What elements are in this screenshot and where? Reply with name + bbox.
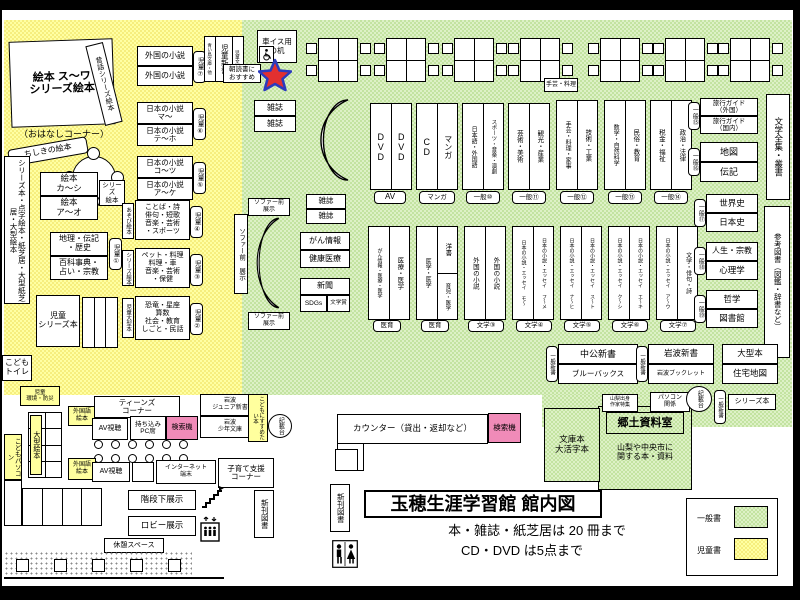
- sofa-front-display-bottom: ソファー前 展示: [248, 312, 290, 330]
- corner-shelf-h-cell: [43, 489, 62, 525]
- ippan-shinsho-label-3: 一般新書: [714, 390, 726, 424]
- kids-pc-label: こどもパソコン: [4, 434, 22, 480]
- sofa-front-display-vertical: ソファー前 展示: [234, 214, 248, 294]
- world-history-shelf: 世界史: [706, 194, 758, 213]
- jp-essay-ku-shelf-col: 日本の小説・エッセイ エ～キ: [629, 227, 650, 319]
- cd-manga-shelf: CDマンガ: [416, 103, 458, 190]
- chair: [496, 65, 507, 76]
- dvd-shelf-col: DVD: [391, 104, 412, 189]
- lobby-display: ロビー展示: [128, 516, 196, 536]
- ippan-17-label: 一般⑰: [694, 199, 706, 227]
- chair: [306, 43, 317, 54]
- chair: [360, 43, 371, 54]
- search-machine-2: 検索機: [166, 416, 198, 440]
- study-table: [600, 38, 640, 82]
- cancer-medical-shelf: がん情報・医療・医学医療・医学: [368, 226, 410, 320]
- legend-general-label: 一般書: [692, 512, 726, 526]
- medical-foreign-shelf-part: 洋書: [438, 227, 458, 273]
- foreign-novels-2: 外国の小説: [137, 66, 193, 86]
- art-tourism-shelf-col: 芸術・美術: [509, 104, 529, 189]
- art-tourism-shelf-col: 観光・産業: [529, 104, 550, 189]
- encyclopedia-shelf: 百科事典・ 占い・宗教: [50, 256, 108, 280]
- kids-toilet-label: こども トイレ: [2, 355, 32, 381]
- chair: [707, 65, 718, 76]
- table-top: [600, 38, 640, 82]
- chuko-shinsho-shelf: 中公新書: [558, 344, 638, 364]
- jp-novels-ma: 日本の小説 マ～: [137, 102, 193, 124]
- magazines-1a: 雑誌: [254, 100, 296, 116]
- series-ehon-side-label: シリーズ絵本: [122, 250, 134, 286]
- newspaper-shelf: 新聞: [300, 278, 350, 295]
- table-top: [730, 38, 770, 82]
- math-folklore-shelf-col: 数学・自然科学: [605, 101, 625, 189]
- chair: [562, 43, 573, 54]
- jido-2-label: 児童②: [190, 303, 203, 335]
- philosophy-shelf: 哲学: [706, 290, 758, 309]
- iwanami-shinsho-shelf: 岩波新書: [648, 344, 714, 364]
- cancer-medical-shelf-col: がん情報・医療・医学: [369, 227, 389, 319]
- chair: [653, 43, 664, 54]
- magazines-1b: 雑誌: [254, 116, 296, 132]
- stool: [145, 440, 154, 449]
- ippan-11-label: 一般⑪: [512, 191, 546, 204]
- cancer-medical-shelf-col: 医療・医学: [389, 227, 410, 319]
- chair: [653, 65, 664, 76]
- jp-essay-mo-shelf-col: 日本の小説・エッセイ フ～メ: [533, 227, 554, 319]
- library-floor-map: 絵本 ス～ワ シリーズ絵本昔話シリーズ絵本（おはなしコーナー）ちしきの絵本絵本 …: [0, 0, 800, 600]
- iiku-label-2: 医育: [421, 320, 449, 332]
- stool: [94, 440, 103, 449]
- geography-history-shelf: 地理・伝記 ・歴史: [50, 232, 108, 256]
- chair: [508, 43, 519, 54]
- search-machine-1: 検索機: [488, 413, 521, 443]
- chair: [442, 43, 453, 54]
- iwanami-booklet-shelf: 岩波ブックレット: [648, 364, 714, 384]
- loan-limit-av: CD・DVD は5点まで: [422, 542, 622, 560]
- teens-corner: ティーンズ コーナー: [94, 396, 180, 418]
- jido-6-label: 児童⑥: [193, 108, 206, 140]
- kodomo-susume-label: こどもにすすめたい本: [248, 394, 268, 442]
- jp-essay-ku-shelf-col: 日本の小説・エッセイ ク～シ: [609, 227, 629, 319]
- jido-1-label: 児童①: [109, 238, 122, 270]
- handicraft-tech-shelf-col: 技術・工業: [577, 101, 598, 189]
- ippan-19-label: 一般⑲: [694, 295, 706, 323]
- legend-children-swatch: [734, 538, 768, 560]
- legend-general-swatch: [734, 506, 768, 528]
- chair: [428, 65, 439, 76]
- jp-essay-na-shelf: 日本の小説・エッセイ ナ～ヒ日本の小説・エッセイ ス～ト: [560, 226, 602, 320]
- bungaku-3-label: 文学③: [468, 320, 504, 332]
- stool: [111, 440, 120, 449]
- dvd-shelf-col: DVD: [371, 104, 391, 189]
- new-books-shelf-1: 新刊図書: [254, 490, 274, 538]
- handicraft-tech-shelf-col: 手芸・料理・家事: [557, 101, 577, 189]
- psychology-shelf: 心理学: [706, 261, 758, 280]
- medical-foreign-shelf-part: 育児・医学: [438, 273, 458, 320]
- jido-shinsho-shelf-col: 青い鳥文庫・他: [205, 37, 215, 81]
- ippan-18-label: 一般⑱: [694, 247, 706, 275]
- ogata-ehon-grid-cell: [46, 446, 62, 461]
- picture-books-a-o: 絵本 ア～オ: [40, 196, 98, 220]
- foreign-fiction-shelf-col: 外国の小説: [485, 227, 506, 319]
- new-books-shelf-2: 新刊図書: [330, 484, 350, 532]
- current-location-star-icon: [258, 58, 292, 92]
- corner-shelf-h-cell: [23, 489, 42, 525]
- language-sports-shelf-col: 日本語・外国語: [463, 104, 483, 189]
- stool-row-1: [94, 440, 188, 448]
- tax-politics-shelf: 税金・福祉政治・法律: [650, 100, 692, 190]
- corner-shelf-v: [4, 480, 22, 526]
- byo-pc-seat: 持ち込み PC席: [130, 416, 166, 440]
- chair: [428, 43, 439, 54]
- rest-area: [4, 551, 192, 578]
- blank-desk-box: [132, 462, 154, 482]
- sofa-crescent-1: [312, 96, 362, 184]
- shugei-mini-label: 手芸・料理: [544, 78, 578, 92]
- stool: [54, 559, 67, 572]
- picture-books-ka-shi: 絵本 カ～シ: [40, 172, 98, 196]
- large-books-shelf: 大型本: [722, 344, 778, 364]
- bungaku-6-label: 文学⑥: [612, 320, 648, 332]
- ogata-ehon-grid-cell: [46, 462, 62, 477]
- ippan-13-label: 一般⑬: [608, 191, 642, 204]
- kisaidai-stand-2: 記載台: [686, 386, 712, 412]
- iiku-label-1: 医育: [373, 320, 401, 332]
- cd-manga-shelf-col: CD: [417, 104, 437, 189]
- language-sports-shelf-col: スポーツ・音楽・演劇: [483, 104, 504, 189]
- jido-ogata-label: 児童大型本: [122, 298, 134, 338]
- stool: [179, 440, 188, 449]
- series-books-shelf: シリーズ本: [728, 394, 776, 410]
- handicraft-tech-shelf: 手芸・料理・家事技術・工業: [556, 100, 598, 190]
- pet-cooking-shelf: ペット・料理 料理・車 音楽・芸術 ・保健: [135, 248, 190, 288]
- pc-related-label: パソコン 関係: [650, 392, 690, 412]
- jido-kankyo-label: 児童 環境・防災: [20, 386, 60, 406]
- stool: [16, 559, 29, 572]
- chair: [87, 147, 100, 160]
- ogata-ehon-grid-cell: [46, 429, 62, 444]
- chair: [374, 65, 385, 76]
- jp-essay-mo-shelf: 日本の小説・エッセイ モ～日本の小説・エッセイ フ～メ: [512, 226, 554, 320]
- local-history-room-caption: 山梨や中央市に 関する本・資料: [600, 438, 690, 468]
- chair: [588, 43, 599, 54]
- chair: [508, 65, 519, 76]
- chair: [562, 65, 573, 76]
- study-table: [730, 38, 770, 82]
- corner-shelf-h-cell: [82, 489, 101, 525]
- chair: [442, 65, 453, 76]
- stool: [130, 559, 143, 572]
- chair: [772, 65, 783, 76]
- table-top: [318, 38, 358, 82]
- kosodate-corner: 子育て支援 コーナー: [218, 458, 274, 488]
- ogata-ehon-grid-cell: [46, 413, 62, 428]
- kisaidai-stand-1: 記載台: [268, 414, 292, 438]
- internet-terminal: インターネット 端末: [156, 460, 216, 484]
- biography-shelf: 伝記: [700, 162, 758, 182]
- toilet-icon: [332, 540, 358, 568]
- sofa-crescent-2: [250, 214, 290, 312]
- bungaku-4-label: 文学④: [516, 320, 552, 332]
- table-top: [386, 38, 426, 82]
- stairs-icon: [200, 486, 224, 508]
- math-folklore-shelf: 数学・自然科学民俗・教育: [604, 100, 646, 190]
- shelf-slats: [82, 297, 118, 348]
- writing-stand-box: [335, 449, 358, 471]
- library-science-shelf: 図書館: [706, 309, 758, 328]
- maps-shelf: 地図: [700, 142, 758, 162]
- children-series-shelf: 児童 シリーズ本: [36, 295, 80, 347]
- loan-limit-books: 本・雑誌・紙芝居は 20 冊まで: [422, 522, 652, 540]
- av-viewing-1: AV視聴: [92, 418, 128, 440]
- foreign-fiction-shelf-col: 外国の小説: [465, 227, 485, 319]
- stool: [162, 440, 171, 449]
- shelf-slats-cell: [95, 298, 106, 347]
- medical-foreign-shelf: 医学・医学洋書育児・医学: [416, 226, 458, 320]
- jp-novels-te-ho: 日本の小説 テ～ホ: [137, 124, 193, 146]
- chair: [772, 43, 783, 54]
- travel-guide-domestic: 旅行ガイド （国内）: [700, 116, 758, 134]
- chair: [374, 43, 385, 54]
- jp-essay-a-shelf-col: 日本の小説・エッセイ ア～ウ: [657, 227, 677, 319]
- tax-politics-shelf-col: 税金・福祉: [651, 101, 671, 189]
- table-top: [520, 38, 560, 82]
- jp-essay-na-shelf-col: 日本の小説・エッセイ ス～ト: [581, 227, 602, 319]
- jp-essay-a-shelf: 日本の小説・エッセイ ア～ウ文学・俳句・詩: [656, 226, 698, 320]
- stairs-display: 階段下展示: [128, 490, 196, 510]
- ippan-shinsho-label-1: 一般新書: [546, 346, 558, 382]
- local-history-room-title: 郷土資料室: [606, 412, 684, 434]
- jido-5-label: 児童⑤: [193, 162, 206, 194]
- stool: [92, 559, 105, 572]
- jido-3-label: 児童③: [190, 254, 203, 286]
- foreign-novels-1: 外国の小説: [137, 46, 193, 66]
- table-top: [665, 38, 705, 82]
- ippan-14-label: 一般⑭: [654, 191, 688, 204]
- stool: [128, 440, 137, 449]
- chair: [642, 65, 653, 76]
- manga-label: マンガ: [419, 191, 455, 204]
- jp-essay-na-shelf-col: 日本の小説・エッセイ ナ～ヒ: [561, 227, 581, 319]
- magazines-2a: 雑誌: [306, 194, 346, 209]
- bunko-large-print-shelf: 文庫本 大活字本: [544, 408, 600, 482]
- kamishibai-shelf-label: シリーズ本・点字絵本・紙芝居・大型紙芝居・大型絵本: [4, 156, 30, 304]
- study-table: [386, 38, 426, 82]
- chair: [306, 65, 317, 76]
- ogata-ehon-label: 大型絵本: [30, 415, 42, 475]
- stool: [168, 559, 181, 572]
- study-table: [665, 38, 705, 82]
- map-canvas: 絵本 ス～ワ シリーズ絵本昔話シリーズ絵本（おはなしコーナー）ちしきの絵本絵本 …: [2, 10, 793, 586]
- math-folklore-shelf-col: 民俗・教育: [625, 101, 646, 189]
- study-table: [318, 38, 358, 82]
- chair: [718, 43, 729, 54]
- map-title: 玉穂生涯学習館 館内図: [364, 490, 602, 518]
- chair: [360, 65, 371, 76]
- jp-essay-mo-shelf-col: 日本の小説・エッセイ モ～: [513, 227, 533, 319]
- medical-foreign-shelf-col: 洋書育児・医学: [437, 227, 458, 319]
- sdgs-shelf: SDGs: [300, 295, 327, 312]
- shelf-slats-cell: [106, 298, 117, 347]
- foreign-fiction-shelf: 外国の小説外国の小説: [464, 226, 506, 320]
- life-religion-shelf: 人生・宗教: [706, 242, 758, 261]
- ippan-16-label: 一般⑯: [688, 148, 700, 176]
- cd-manga-shelf-col: マンガ: [437, 104, 458, 189]
- jido-4-label: 児童④: [190, 206, 203, 238]
- bungaku-5-label: 文学⑤: [564, 320, 600, 332]
- study-table: [454, 38, 494, 82]
- rest-area-edge-line: [4, 577, 224, 579]
- bluebacks-shelf: ブルーバックス: [558, 364, 638, 384]
- medical-foreign-shelf-col: 医学・医学: [417, 227, 437, 319]
- kotoba-shelf: ことば・詩 俳句・短歌 音楽・芸術 ・スポーツ: [135, 200, 190, 240]
- corner-shelf-h: [22, 488, 102, 526]
- literature-zenshu-shelf: 文学全集・叢書: [766, 94, 790, 200]
- magazines-2b: 雑誌: [306, 209, 346, 224]
- elevator-icon: [200, 516, 220, 542]
- asobi-ehon-label: あそび絵本: [122, 203, 134, 239]
- art-tourism-shelf: 芸術・美術観光・産業: [508, 103, 550, 190]
- jp-novels-ko-tsu: 日本の小説 コ～ツ: [137, 156, 193, 178]
- chair: [718, 65, 729, 76]
- ippan-shinsho-label-2: 一般新書: [636, 346, 648, 382]
- table-top: [454, 38, 494, 82]
- japan-history-shelf: 日本史: [706, 213, 758, 232]
- reference-books-shelf: 参考図書（図鑑・辞書など）: [764, 206, 790, 358]
- corner-shelf-h-cell: [63, 489, 82, 525]
- chair: [707, 43, 718, 54]
- dinosaur-shelf: 恐竜・星座 算数 社会・教育 しごと・民話: [135, 296, 190, 340]
- bungaku-7-label: 文学⑦: [660, 320, 696, 332]
- bungakusho-shelf: 文学賞: [327, 295, 350, 312]
- dvd-shelf: DVDDVD: [370, 103, 412, 190]
- study-table: [520, 38, 560, 82]
- asadoku-label: 朝読書に おすすめ: [223, 64, 261, 83]
- legend-children-label: 児童書: [692, 544, 726, 558]
- chair: [496, 43, 507, 54]
- chair: [642, 43, 653, 54]
- shelf-slats-cell: [83, 298, 94, 347]
- av-viewing-2: AV視聴: [92, 462, 130, 482]
- travel-guide-foreign: 旅行ガイド （外国）: [700, 98, 758, 116]
- language-sports-shelf: 日本語・外国語スポーツ・音楽・演劇: [462, 103, 504, 190]
- ippan-15-label: 一般⑮: [688, 102, 700, 130]
- jp-novels-a-ke: 日本の小説 ア～ケ: [137, 178, 193, 200]
- counter: カウンター（貸出・返却など）: [337, 414, 488, 444]
- chair: [588, 65, 599, 76]
- health-medical-shelf: 健康医療: [300, 250, 350, 268]
- cancer-info-shelf: がん情報: [300, 232, 350, 250]
- jp-essay-ku-shelf: 日本の小説・エッセイ ク～シ日本の小説・エッセイ エ～キ: [608, 226, 650, 320]
- ippan-10-label: 一般⑩: [466, 191, 500, 204]
- av-label: AV: [374, 191, 406, 204]
- yamanashi-authors-label: 山梨出身 作家特集: [602, 394, 638, 412]
- ippan-12-label: 一般⑫: [560, 191, 594, 204]
- housing-maps-shelf: 住宅地図: [722, 364, 778, 384]
